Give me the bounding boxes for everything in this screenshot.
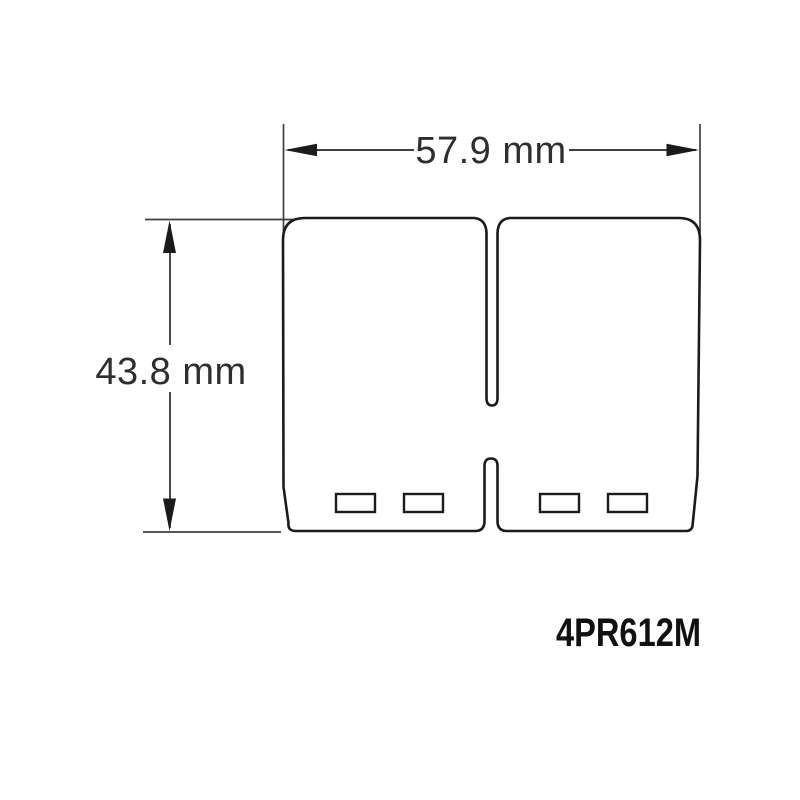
slot-hole-3	[540, 494, 579, 512]
arrowhead-up-icon	[163, 221, 176, 254]
technical-drawing-canvas: 57.9 mm 43.8 mm 4PR612M	[0, 0, 800, 800]
width-dimension: 57.9 mm	[284, 124, 701, 233]
arrowhead-right-icon	[667, 144, 700, 156]
slot-hole-2	[404, 494, 443, 512]
arrowhead-left-icon	[285, 144, 318, 156]
reed-petal-drawing: 57.9 mm 43.8 mm 4PR612M	[0, 0, 800, 800]
part-number-label: 4PR612M	[556, 611, 701, 655]
arrowhead-down-icon	[163, 499, 176, 532]
reed-petal-outline	[283, 218, 700, 531]
slot-hole-4	[608, 494, 647, 512]
width-dimension-label: 57.9 mm	[415, 130, 566, 172]
height-dimension-label: 43.8 mm	[95, 351, 246, 393]
slot-hole-1	[336, 494, 375, 512]
height-dimension: 43.8 mm	[95, 220, 297, 533]
